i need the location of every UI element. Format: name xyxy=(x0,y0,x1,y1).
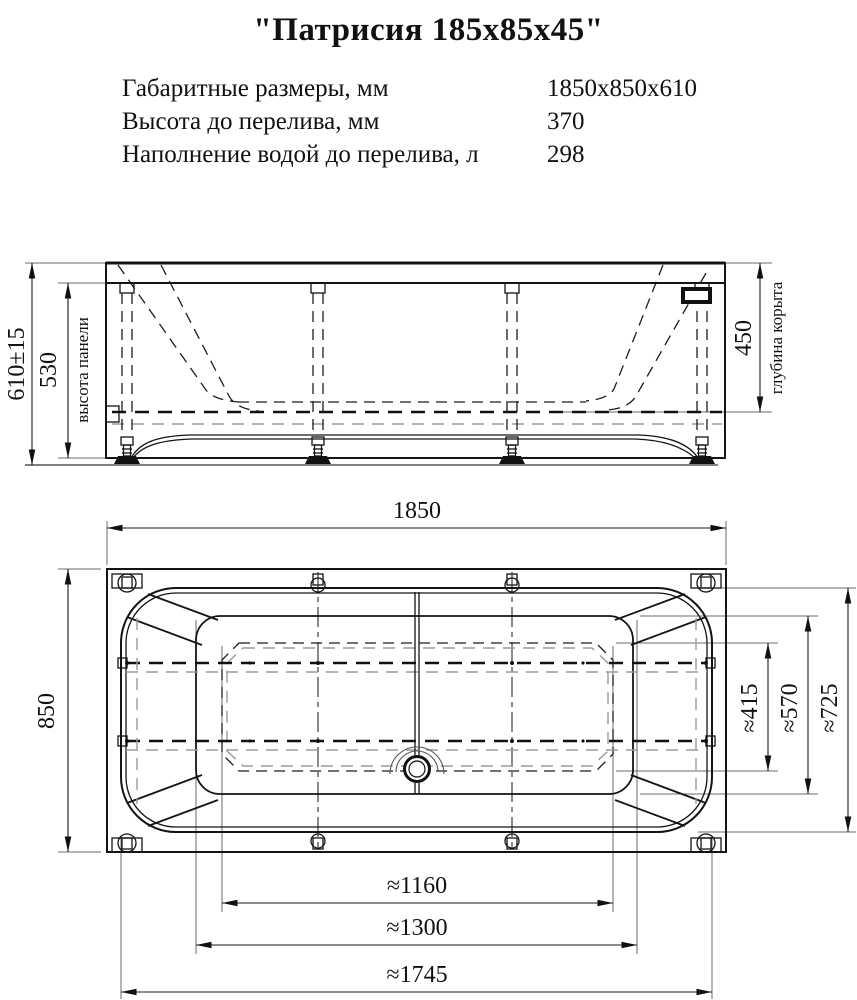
dim-floor-length: ≈1160 xyxy=(387,873,447,899)
dim-bowl-width: ≈570 xyxy=(777,683,803,732)
dim-plan-length: 1850 xyxy=(393,498,441,524)
dim-plan-width: 850 xyxy=(34,693,60,729)
drain xyxy=(390,747,444,782)
top-view: 1850 850 ≈415 ≈570 ≈725 ≈1160 ≈1300 ≈174… xyxy=(34,498,856,999)
front-view: 610±15 530 высота панели 450 глубина кор… xyxy=(4,263,786,465)
dim-rim-length: ≈1745 xyxy=(386,962,447,988)
drawing-sheet: "Патрисия 185х85х45" Габаритные размеры,… xyxy=(0,0,857,1000)
overflow-opening xyxy=(683,289,710,302)
leg-supports xyxy=(114,283,715,464)
dim-bowl-length: ≈1300 xyxy=(386,915,447,941)
technical-drawing: 610±15 530 высота панели 450 глубина кор… xyxy=(0,0,857,1000)
label-bowl-depth: глубина корыта xyxy=(767,281,786,394)
fastener-dots xyxy=(125,661,708,743)
dim-front-panel-height: 530 xyxy=(36,352,62,388)
dim-floor-width: ≈415 xyxy=(737,683,763,732)
dim-rim-width: ≈725 xyxy=(817,683,843,732)
label-panel-height: высота панели xyxy=(73,317,92,423)
dim-front-bowl-depth: 450 xyxy=(731,320,757,356)
dim-front-total-height: 610±15 xyxy=(4,327,30,400)
